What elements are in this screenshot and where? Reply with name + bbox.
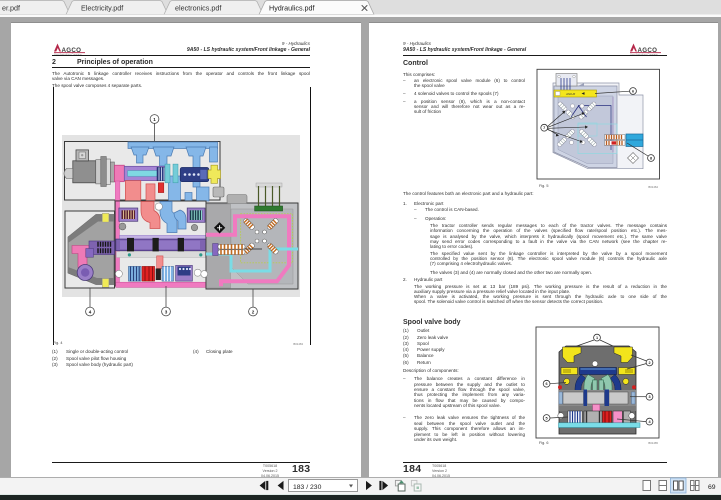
svg-text:2: 2 bbox=[252, 309, 255, 314]
svg-text:1: 1 bbox=[596, 336, 598, 340]
svg-text:6: 6 bbox=[546, 382, 548, 386]
svg-text:6: 6 bbox=[632, 90, 634, 94]
svg-text:7: 7 bbox=[543, 126, 545, 130]
svg-text:5: 5 bbox=[546, 417, 548, 421]
svg-text:2: 2 bbox=[648, 361, 650, 365]
svg-text:8: 8 bbox=[650, 157, 652, 161]
svg-text:3: 3 bbox=[648, 395, 650, 399]
svg-text:Electricity.pdf: Electricity.pdf bbox=[81, 4, 123, 13]
svg-text:4: 4 bbox=[89, 309, 92, 314]
svg-text:1: 1 bbox=[153, 117, 156, 122]
svg-text:er.pdf: er.pdf bbox=[2, 4, 20, 13]
svg-text:69: 69 bbox=[708, 484, 716, 491]
svg-text:electronics.pdf: electronics.pdf bbox=[175, 4, 221, 13]
svg-text:183 / 230: 183 / 230 bbox=[293, 484, 322, 491]
svg-text:3: 3 bbox=[165, 309, 168, 314]
svg-text:Hydraulics.pdf: Hydraulics.pdf bbox=[269, 4, 315, 13]
svg-text:AS9-M: AS9-M bbox=[565, 92, 576, 96]
